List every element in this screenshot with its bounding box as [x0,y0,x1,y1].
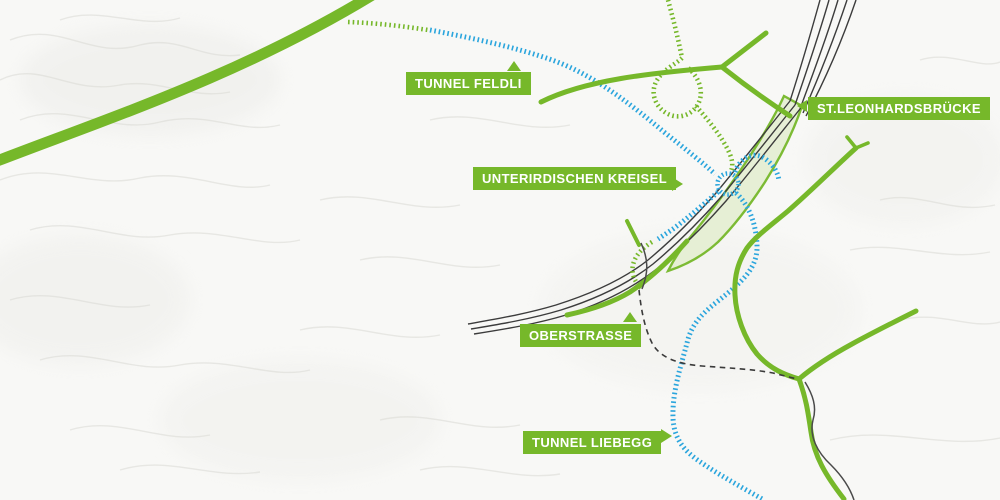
label-oberstrasse: OBERSTRASSE [520,324,641,347]
label-st-leonhardsbruecke-text: ST.LEONHARDSBRÜCKE [817,101,981,116]
label-st-leonhardsbruecke: ST.LEONHARDSBRÜCKE [808,97,990,120]
arrow-up-icon [623,312,637,322]
label-unterirdischer-kreisel-text: UNTERIRDISCHEN KREISEL [482,171,667,186]
label-tunnel-liebegg: TUNNEL LIEBEGG [523,431,661,454]
arrow-left-icon [797,100,807,112]
arrow-right-icon [672,177,683,191]
label-tunnel-liebegg-text: TUNNEL LIEBEGG [532,435,652,450]
label-unterirdischer-kreisel: UNTERIRDISCHEN KREISEL [473,167,676,190]
map-canvas: TUNNEL FELDLI ST.LEONHARDSBRÜCKE UNTERIR… [0,0,1000,500]
label-oberstrasse-text: OBERSTRASSE [529,328,632,343]
arrow-up-icon [507,61,521,71]
label-tunnel-feldli: TUNNEL FELDLI [406,72,531,95]
loop-ramp-dotted [654,0,733,171]
feldli-portal-dotted-section [348,22,428,30]
tunnel-feldli-line [430,30,715,174]
arrow-right-icon [661,429,672,443]
label-tunnel-feldli-text: TUNNEL FELDLI [415,76,522,91]
